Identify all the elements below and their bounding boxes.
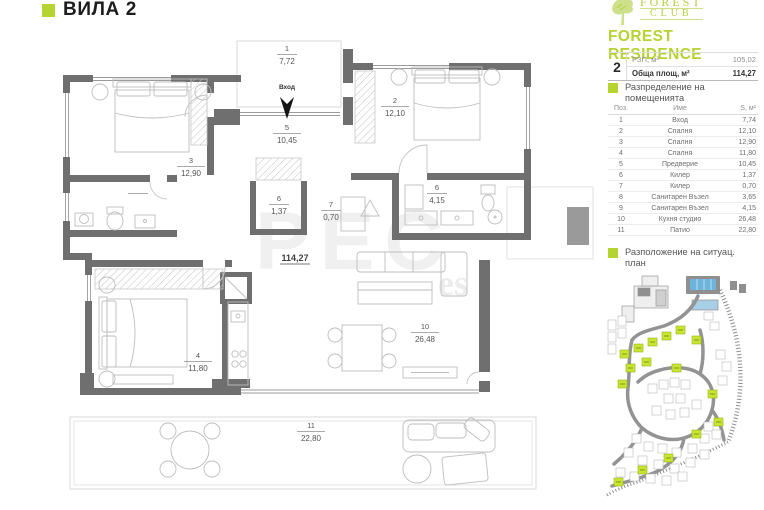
svg-text:6: 6 — [435, 183, 439, 192]
section-siteplan-heading: Разположение на ситуац. план — [608, 247, 758, 268]
dining-set — [328, 325, 396, 371]
svg-text:11,80: 11,80 — [188, 364, 208, 373]
svg-text:22,80: 22,80 — [301, 434, 322, 443]
table-row: 3Спалня12,90 — [608, 137, 758, 148]
svg-text:4: 4 — [196, 351, 200, 360]
svg-text:3: 3 — [189, 156, 193, 165]
site-plan-map — [604, 272, 764, 508]
room-label-1: 1 7,72 — [277, 44, 297, 66]
svg-text:10: 10 — [421, 322, 429, 331]
table-row: 9Санитарен Възел4,15 — [608, 203, 758, 214]
tree-icon — [608, 0, 636, 26]
bed-room2 — [391, 67, 500, 140]
svg-text:1,37: 1,37 — [271, 207, 287, 216]
room-label-4: 4 11,80 — [184, 351, 212, 373]
patio-dining — [160, 423, 220, 477]
table-row: 5Предверие10,45 — [608, 159, 758, 170]
section-rooms-heading: Разпределение на помещенията — [608, 82, 758, 103]
total-area-label: 114,27 — [280, 253, 310, 264]
table-row: 2Спалня12,10 — [608, 126, 758, 137]
bath8-fixtures — [75, 207, 155, 230]
section-bullet-icon — [608, 83, 618, 93]
table-row: 4Спалня11,80 — [608, 148, 758, 159]
svg-text:1: 1 — [285, 44, 289, 53]
walls — [63, 49, 589, 395]
room-label-11: 11 22,80 — [297, 421, 325, 443]
forest-club-logo: FOREST CLUB — [608, 0, 703, 26]
table-row: 11Патио22,80 — [608, 225, 758, 236]
svg-text:5: 5 — [285, 123, 289, 132]
room-label-9: 6 4,15 — [427, 183, 447, 205]
svg-text:11: 11 — [307, 421, 315, 430]
room-label-2: 2 12,10 — [381, 96, 409, 118]
room-label-3: 3 12,90 — [177, 156, 205, 178]
rooms-table: Поз. Име S, м² 1Вход7,74 2Спалня12,10 3С… — [608, 104, 758, 236]
svg-text:7: 7 — [329, 200, 333, 209]
sofa — [357, 252, 467, 296]
title-bullet-icon — [42, 4, 55, 17]
villa-title: ВИЛА 2 — [63, 0, 137, 21]
kitchen — [228, 302, 248, 385]
villa-number: 2 — [608, 53, 627, 80]
svg-text:114,27: 114,27 — [281, 253, 308, 263]
bath9-fixtures — [405, 185, 502, 225]
rzp-value: 105,02 — [733, 55, 756, 64]
room-label-7: 7 0,70 — [321, 200, 341, 222]
spec-box: 2 РЗП, м² 105,02 Обща площ, м² 114,27 — [608, 52, 758, 81]
section-bullet-icon — [608, 248, 618, 258]
table-row: 6Килер1,37 — [608, 170, 758, 181]
table-header-row: Поз. Име S, м² — [608, 104, 758, 115]
room-label-6: 6 1,37 — [269, 194, 289, 216]
svg-text:2: 2 — [393, 96, 397, 105]
total-area-value: 114,27 — [733, 69, 756, 78]
svg-text:12,10: 12,10 — [385, 109, 406, 118]
table-row: 1Вход7,74 — [608, 115, 758, 126]
svg-text:6: 6 — [277, 194, 281, 203]
svg-text:7,72: 7,72 — [279, 57, 295, 66]
clubhouse-buildings — [622, 276, 668, 322]
table-row: 7Килер0,70 — [608, 181, 758, 192]
room-label-5: 5 10,45 — [273, 123, 301, 145]
bed-room4 — [99, 277, 187, 387]
floorplan-page: ВИЛА 2 РЕС es — [0, 0, 764, 510]
logo-text: FOREST CLUB — [640, 0, 703, 20]
svg-text:12,90: 12,90 — [181, 169, 202, 178]
entrance-label: Вход — [279, 84, 295, 91]
page-title: ВИЛА 2 — [42, 0, 137, 21]
table-row: 8Санитарен Възел3,65 — [608, 192, 758, 203]
fridge — [225, 277, 247, 299]
rzp-label: РЗП, м² — [632, 55, 659, 64]
svg-text:4,15: 4,15 — [429, 196, 445, 205]
patio-lounge — [403, 416, 495, 485]
svg-text:26,48: 26,48 — [415, 335, 436, 344]
floor-plan: 1 7,72 Вход 5 10,45 2 12,10 3 12,90 — [55, 35, 607, 497]
info-panel: FOREST CLUB FOREST RESIDENCE 2 РЗП, м² 1… — [600, 0, 764, 510]
table-row: 10Кухня студио26,48 — [608, 214, 758, 225]
svg-text:0,70: 0,70 — [323, 213, 339, 222]
room-label-10: 10 26,48 — [411, 322, 439, 344]
total-area-label: Обща площ, м² — [632, 69, 690, 78]
svg-text:10,45: 10,45 — [277, 136, 298, 145]
